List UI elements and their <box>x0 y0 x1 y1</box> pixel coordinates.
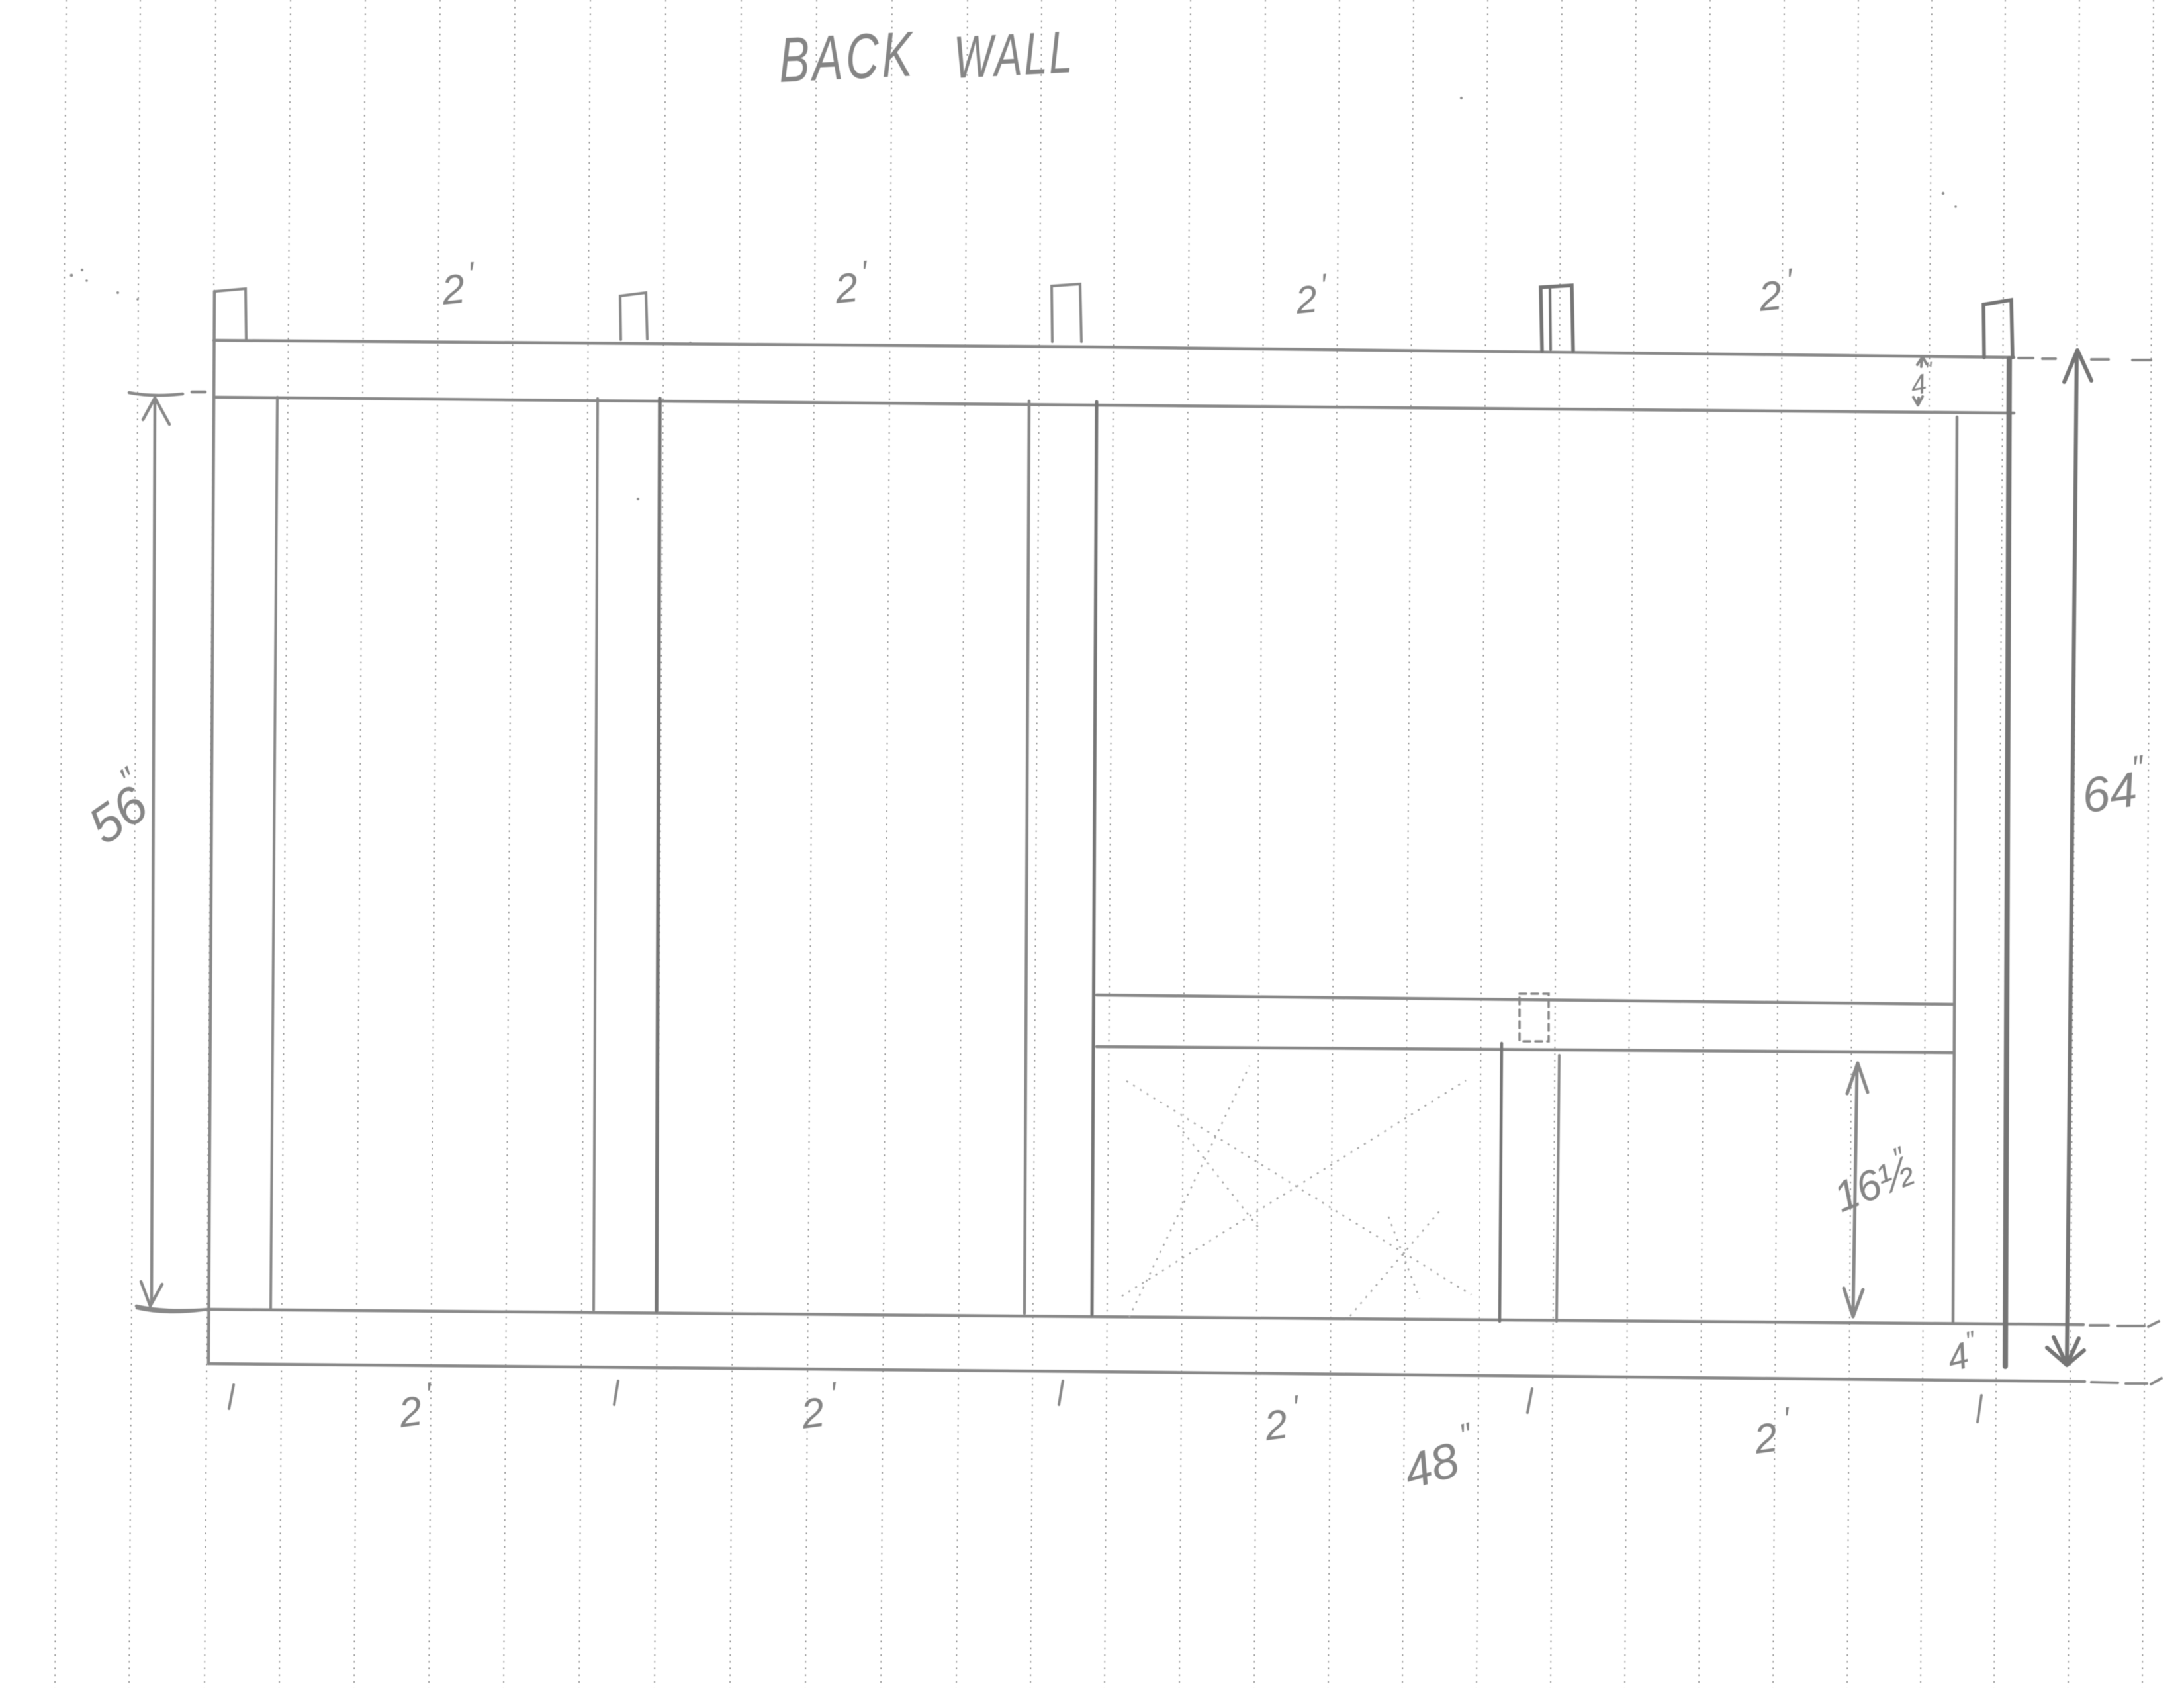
svg-text:2: 2 <box>832 265 860 312</box>
svg-text:2: 2 <box>439 266 467 314</box>
svg-text:64: 64 <box>2079 761 2140 823</box>
svg-text:2: 2 <box>1293 277 1320 322</box>
svg-text:WALL: WALL <box>953 19 1075 91</box>
svg-text:2: 2 <box>1756 273 1784 320</box>
svg-text:BACK: BACK <box>778 18 916 96</box>
